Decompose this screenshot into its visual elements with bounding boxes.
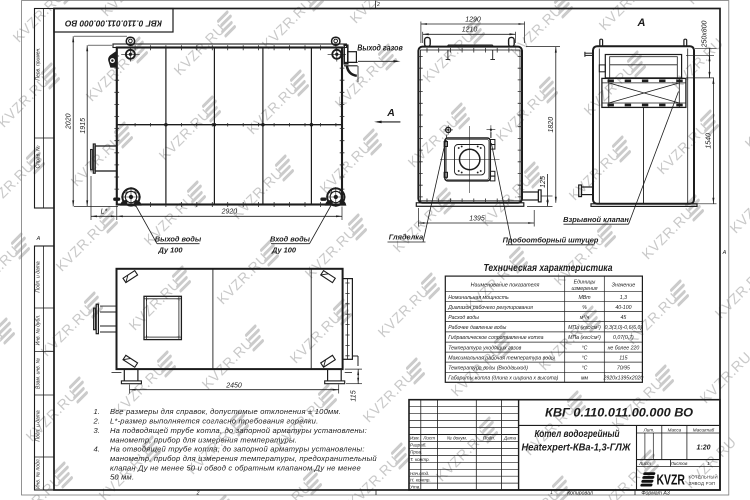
svg-text:2020: 2020 (65, 113, 72, 130)
svg-text:2: 2 (376, 2, 380, 8)
svg-text:измерения: измерения (572, 286, 598, 292)
svg-text:1290: 1290 (465, 16, 481, 23)
svg-text:Подп.: Подп. (483, 435, 495, 440)
svg-text:250х800: 250х800 (702, 20, 709, 48)
svg-text:КВГ 0.110.011.00.000 ВО: КВГ 0.110.011.00.000 ВО (65, 18, 162, 28)
svg-text:Взам. инв. №: Взам. инв. № (36, 357, 42, 389)
svg-text:Изм.: Изм. (410, 435, 420, 440)
svg-text:Пробоотборный штуцер: Пробоотборный штуцер (503, 235, 599, 244)
svg-text:Лист: Лист (638, 461, 651, 466)
svg-text:Утв.: Утв. (410, 485, 420, 490)
svg-text:Диапазон рабочего регулировани: Диапазон рабочего регулирования (447, 305, 533, 311)
svg-text:L*-размер выполняется согласно: L*-размер выполняется согласно требовани… (110, 417, 318, 426)
svg-text:40-100: 40-100 (615, 305, 631, 311)
svg-text:50 мм.: 50 мм. (110, 473, 134, 482)
svg-text:2920х1395х2020: 2920х1395х2020 (602, 376, 643, 382)
svg-text:мм: мм (581, 376, 589, 382)
svg-text:1210: 1210 (462, 27, 478, 34)
svg-text:А: А (637, 17, 646, 29)
svg-text:Температура воды (Вход/выход): Температура воды (Вход/выход) (448, 365, 528, 371)
svg-text:не более 220: не более 220 (608, 345, 640, 351)
svg-text:Расход воды: Расход воды (448, 315, 479, 321)
svg-text:0,3(3,0)-0,6(6,0): 0,3(3,0)-0,6(6,0) (605, 325, 643, 331)
svg-text:№ докум.: № докум. (447, 435, 467, 440)
svg-text:Единицы: Единицы (574, 279, 596, 285)
svg-text:Выход газов: Выход газов (357, 43, 403, 52)
svg-text:1395: 1395 (469, 215, 485, 222)
svg-text:1540: 1540 (706, 133, 713, 149)
svg-text:Подп. и дата: Подп. и дата (36, 261, 42, 293)
svg-text:Лист: Лист (422, 435, 435, 440)
svg-text:1: 1 (550, 490, 553, 496)
svg-text:Рабочее давление воды: Рабочее давление воды (448, 325, 506, 331)
svg-text:3.: 3. (94, 426, 100, 435)
svg-text:Гляделка: Гляделка (389, 233, 424, 242)
svg-text:1: 1 (707, 461, 710, 466)
svg-text:Значение: Значение (612, 283, 636, 289)
svg-text:125: 125 (540, 176, 547, 188)
svg-text:45: 45 (621, 315, 627, 321)
svg-text:Т. контр.: Т. контр. (410, 457, 430, 462)
svg-text:А: А (386, 107, 395, 119)
svg-text:Подп. и дата: Подп. и дата (36, 410, 42, 442)
svg-text:1820: 1820 (548, 117, 555, 133)
svg-text:клапан Ду не менее 50 и обвод: клапан Ду не менее 50 и обвод с обратным… (110, 463, 361, 472)
svg-text:1,3: 1,3 (620, 295, 627, 301)
svg-text:2920: 2920 (221, 209, 238, 216)
svg-text:м³/ч: м³/ч (580, 315, 590, 321)
svg-text:Температура уходящих газов: Температура уходящих газов (448, 345, 521, 351)
svg-text:°С: °С (582, 355, 588, 361)
svg-text:Листов: Листов (670, 461, 688, 466)
svg-text:Дата: Дата (503, 435, 517, 440)
svg-text:70/95: 70/95 (617, 365, 630, 371)
svg-text:Разраб.: Разраб. (410, 443, 427, 448)
svg-text:2450: 2450 (225, 382, 242, 389)
svg-text:Номинальная мощность: Номинальная мощность (448, 295, 509, 301)
svg-text:Ду 100: Ду 100 (271, 246, 297, 255)
svg-text:Взрывной клапан: Взрывной клапан (563, 215, 629, 224)
svg-text:2: 2 (196, 491, 200, 497)
svg-text:°С: °С (582, 345, 588, 351)
svg-text:Котел водогрейный: Котел водогрейный (535, 429, 620, 440)
svg-text:Heatexpert-КВа-1,3-ГЛЖ: Heatexpert-КВа-1,3-ГЛЖ (522, 442, 632, 453)
svg-text:ЗАВОД РЭП: ЗАВОД РЭП (689, 481, 716, 486)
svg-text:115: 115 (350, 390, 357, 401)
svg-text:МВт: МВт (578, 295, 591, 301)
svg-text:L*: L* (101, 209, 108, 216)
svg-text:4.: 4. (94, 445, 100, 454)
svg-text:Справ. №: Справ. № (36, 145, 42, 168)
svg-text:А: А (722, 250, 727, 256)
svg-text:Гидравлическое сопротивление к: Гидравлическое сопротивление котла (448, 335, 543, 341)
svg-text:0,07(0,7): 0,07(0,7) (613, 335, 634, 341)
svg-text:Нач.отд.: Нач.отд. (410, 471, 429, 476)
svg-text:Все размеры для справок, допус: Все размеры для справок, допустимые откл… (110, 407, 341, 416)
svg-text:Ду 100: Ду 100 (157, 246, 183, 255)
svg-text:1.: 1. (94, 407, 100, 416)
svg-text:Пров.: Пров. (410, 450, 422, 455)
svg-text:Перв. примен.: Перв. примен. (36, 47, 42, 80)
svg-text:2.: 2. (93, 417, 100, 426)
svg-text:Масса: Масса (668, 427, 682, 432)
svg-text:КОТЕЛЬНЫЙ: КОТЕЛЬНЫЙ (689, 474, 718, 479)
svg-text:%: % (582, 305, 587, 311)
svg-text:Формат А3: Формат А3 (641, 490, 669, 496)
svg-text:°С: °С (582, 365, 588, 371)
svg-text:Инв. № подл.: Инв. № подл. (36, 458, 42, 489)
svg-text:манометр, прибор для измерения: манометр, прибор для измерения температу… (110, 435, 297, 444)
svg-text:МПа (кгс/см²): МПа (кгс/см²) (568, 335, 601, 341)
svg-text:А: А (36, 236, 41, 242)
svg-text:Наименование показателя: Наименование показателя (471, 283, 540, 289)
svg-text:Инв. № дубл.: Инв. № дубл. (36, 315, 42, 346)
svg-text:Выход воды: Выход воды (155, 234, 202, 243)
svg-text:Н. контр.: Н. контр. (410, 478, 431, 483)
svg-text:Габариты котла (длина х ширина: Габариты котла (длина х ширина х высота) (448, 376, 558, 382)
svg-text:KVZR: KVZR (657, 472, 686, 488)
svg-text:Максимальная рабочая температу: Максимальная рабочая температура воды (448, 355, 555, 361)
svg-text:115: 115 (619, 355, 627, 361)
svg-text:МПа (кгс/см²): МПа (кгс/см²) (568, 325, 601, 331)
svg-text:1915: 1915 (80, 118, 87, 134)
svg-text:На подводящей трубе котла, до: На подводящей трубе котла, до запорной а… (110, 426, 367, 435)
svg-text:Техническая характеристика: Техническая характеристика (484, 263, 613, 274)
svg-text:манометр, прибор для измерения: манометр, прибор для измерения температу… (110, 454, 377, 463)
svg-text:Лит.: Лит. (643, 427, 655, 432)
svg-text:Вход воды: Вход воды (270, 234, 311, 243)
svg-text:КВГ 0.110.011.00.000 ВО: КВГ 0.110.011.00.000 ВО (545, 406, 693, 420)
svg-text:1:20: 1:20 (696, 445, 710, 452)
svg-text:На отводящей трубе котла, до з: На отводящей трубе котла, до запорной ар… (110, 445, 365, 454)
svg-text:Копировал: Копировал (567, 490, 593, 496)
svg-text:Масштаб: Масштаб (693, 427, 715, 432)
